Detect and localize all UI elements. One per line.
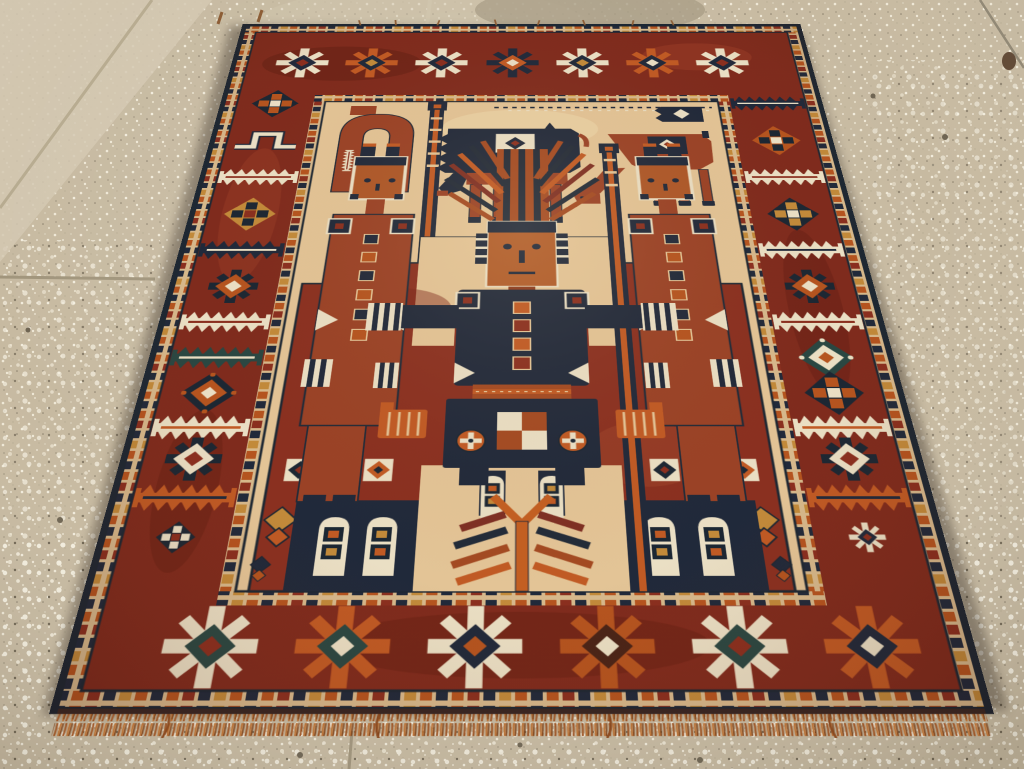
photograph-scene: Antique tribal pictorial rug displayed o…	[0, 0, 1024, 769]
bottom-fringe	[50, 709, 993, 738]
